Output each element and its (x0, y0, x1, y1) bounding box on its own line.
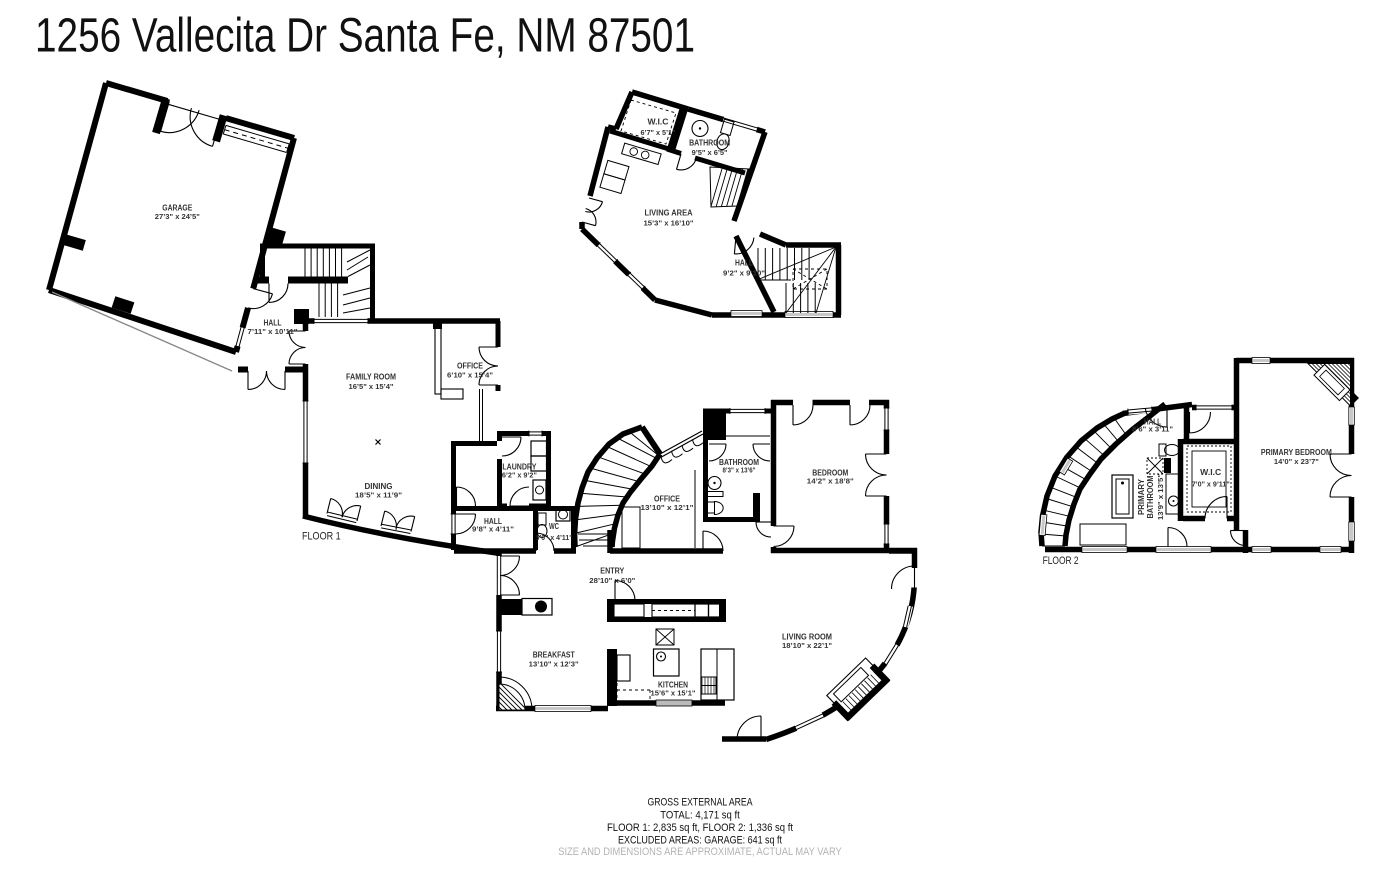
svg-text:HALL: HALL (735, 259, 753, 268)
svg-text:BATHROOM: BATHROOM (689, 138, 730, 147)
svg-text:9’8" x 4’11": 9’8" x 4’11" (472, 524, 514, 533)
svg-text:14’2" x 18’8": 14’2" x 18’8" (807, 476, 854, 485)
svg-text:9’2" x 9’10": 9’2" x 9’10" (723, 269, 765, 278)
svg-text:WC: WC (549, 522, 559, 531)
svg-text:LIVING AREA: LIVING AREA (645, 209, 693, 218)
svg-text:16’5" x 15’4": 16’5" x 15’4" (349, 382, 394, 391)
svg-text:FLOOR 2: FLOOR 2 (1043, 555, 1079, 567)
svg-text:8’3" x 13’6": 8’3" x 13’6" (723, 466, 756, 475)
svg-text:6’10" x 15’4": 6’10" x 15’4" (447, 370, 493, 379)
svg-text:5’0" x 4’11": 5’0" x 4’11" (536, 533, 573, 542)
svg-text:SIZE AND DIMENSIONS ARE APPROX: SIZE AND DIMENSIONS ARE APPROXIMATE, ACT… (558, 846, 842, 858)
svg-text:GROSS EXTERNAL AREA: GROSS EXTERNAL AREA (648, 797, 754, 809)
svg-text:18’5" x 11’9": 18’5" x 11’9" (355, 491, 402, 500)
svg-text:FAMILY ROOM: FAMILY ROOM (346, 373, 396, 382)
svg-text:7’11" x 10’11": 7’11" x 10’11" (248, 327, 298, 336)
svg-text:28’10" x 6’0": 28’10" x 6’0" (589, 576, 635, 585)
svg-text:6’7" x 5’1": 6’7" x 5’1" (641, 128, 676, 137)
svg-text:6’2" x 9’2": 6’2" x 9’2" (502, 471, 537, 480)
svg-text:13’10" x 12’3": 13’10" x 12’3" (529, 660, 579, 669)
svg-text:EXCLUDED AREAS: GARAGE: 641 sq: EXCLUDED AREAS: GARAGE: 641 sq ft (618, 835, 782, 847)
svg-text:13’10" x 12’1": 13’10" x 12’1" (641, 503, 694, 512)
svg-text:W.I.C: W.I.C (648, 117, 669, 126)
svg-text:13’9" x 13’5": 13’9" x 13’5" (1156, 474, 1165, 520)
svg-text:TOTAL: 4,171 sq ft: TOTAL: 4,171 sq ft (660, 809, 740, 821)
svg-text:8’6" x 3’11": 8’6" x 3’11" (1132, 425, 1173, 434)
svg-text:PRIMARY: PRIMARY (1137, 478, 1146, 515)
svg-text:W.I.C: W.I.C (1200, 468, 1221, 477)
svg-text:HALL: HALL (264, 318, 282, 327)
svg-text:18’10" x 22’1": 18’10" x 22’1" (782, 641, 832, 650)
svg-text:OFFICE: OFFICE (457, 361, 484, 370)
svg-text:15’6" x 15’1": 15’6" x 15’1" (651, 689, 696, 698)
svg-text:BATHROOM: BATHROOM (1146, 475, 1155, 518)
svg-text:ENTRY: ENTRY (600, 567, 625, 576)
svg-text:BREAKFAST: BREAKFAST (533, 651, 575, 660)
svg-text:FLOOR 1: FLOOR 1 (302, 530, 341, 542)
svg-text:27’3" x 24’5": 27’3" x 24’5" (155, 212, 200, 221)
svg-text:LIVING ROOM: LIVING ROOM (782, 632, 832, 641)
svg-text:15’3" x 16’10": 15’3" x 16’10" (644, 219, 694, 228)
svg-text:7’0" x 9’11": 7’0" x 9’11" (1192, 479, 1230, 488)
svg-text:9’5" x 6’5": 9’5" x 6’5" (692, 148, 728, 157)
svg-text:OFFICE: OFFICE (654, 494, 681, 503)
svg-text:1256 Vallecita Dr Santa Fe, NM: 1256 Vallecita Dr Santa Fe, NM 87501 (35, 10, 695, 63)
svg-text:FLOOR 1: 2,835 sq ft, FLOOR 2:: FLOOR 1: 2,835 sq ft, FLOOR 2: 1,336 sq … (607, 822, 793, 834)
svg-text:PRIMARY BEDROOM: PRIMARY BEDROOM (1261, 448, 1332, 457)
svg-text:14’0" x 23’7": 14’0" x 23’7" (1274, 457, 1319, 466)
